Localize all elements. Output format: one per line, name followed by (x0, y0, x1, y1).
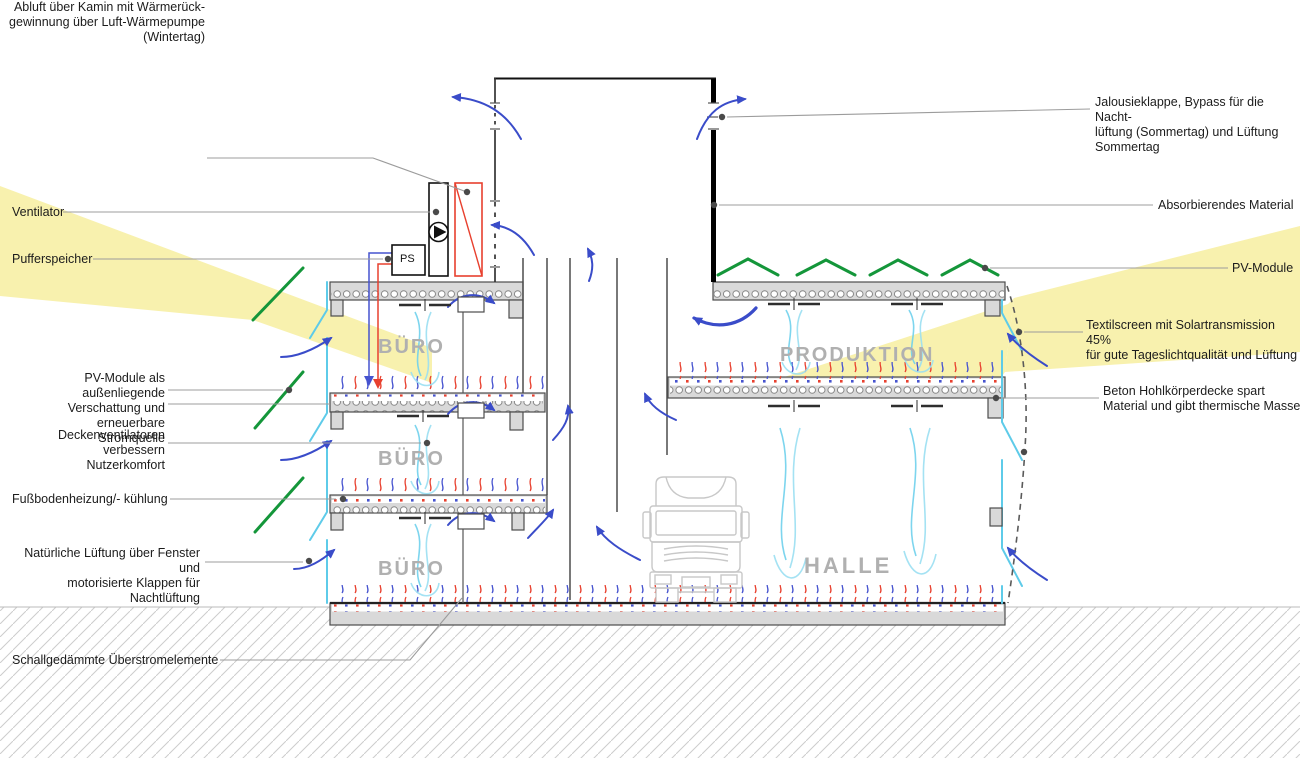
label-textilscreen: Textilscreen mit Solartransmission 45% f… (1086, 318, 1300, 363)
leader-lines (63, 109, 1228, 660)
label-natuerliche-lueftung: Natürliche Lüftung über Fenster und moto… (0, 546, 200, 606)
label-schallgedaemmte: Schallgedämmte Überstromelemente (12, 653, 218, 668)
label-abluft-kamin: Abluft über Kamin mit Wärmerück- gewinnu… (0, 0, 205, 45)
ceiling-fan-icon (768, 400, 820, 412)
wall-element (990, 508, 1002, 526)
ceiling-fan-icon (891, 400, 943, 412)
room-label-buero-3: BÜRO (378, 558, 445, 581)
pv-roof-modules (718, 259, 998, 275)
buero-lower-deck (330, 495, 547, 530)
truck (643, 477, 749, 602)
buero-roof-deck (330, 282, 523, 318)
label-beton-hohlkoerperdecke: Beton Hohlkörperdecke spart Material und… (1103, 384, 1300, 414)
buffer-storage-label: PS (400, 253, 415, 265)
label-jalousieklappe: Jalousieklappe, Bypass für die Nacht- lü… (1095, 95, 1300, 155)
room-label-buero-1: BÜRO (378, 336, 445, 359)
produktion-mid-deck (668, 377, 1005, 418)
ventilation-concept-diagram: Abluft über Kamin mit Wärmerück- gewinnu… (0, 0, 1300, 758)
produktion-roof-deck (713, 282, 1005, 316)
label-deckenventilatoren: Deckenventilatoren verbessern Nutzerkomf… (0, 428, 165, 473)
exhaust-chimney (490, 78, 716, 282)
shaft-walls (523, 258, 667, 600)
room-label-halle: HALLE (804, 553, 892, 579)
label-ventilator: Ventilator (12, 205, 64, 220)
ground-floor-slab (330, 603, 1005, 625)
room-label-buero-2: BÜRO (378, 448, 445, 471)
label-fussbodenheizung: Fußbodenheizung/- kühlung (12, 492, 168, 507)
ground-hatch (0, 607, 1300, 758)
label-pufferspeicher: Pufferspeicher (12, 252, 92, 267)
label-pv-module: PV-Module (1232, 261, 1293, 276)
label-absorbierendes-material: Absorbierendes Material (1158, 198, 1294, 213)
buero-mid-deck (330, 393, 545, 430)
room-label-produktion: PRODUKTION (780, 344, 934, 367)
ceiling-fan-icon (399, 299, 451, 311)
ceiling-fan-icon (399, 512, 451, 524)
